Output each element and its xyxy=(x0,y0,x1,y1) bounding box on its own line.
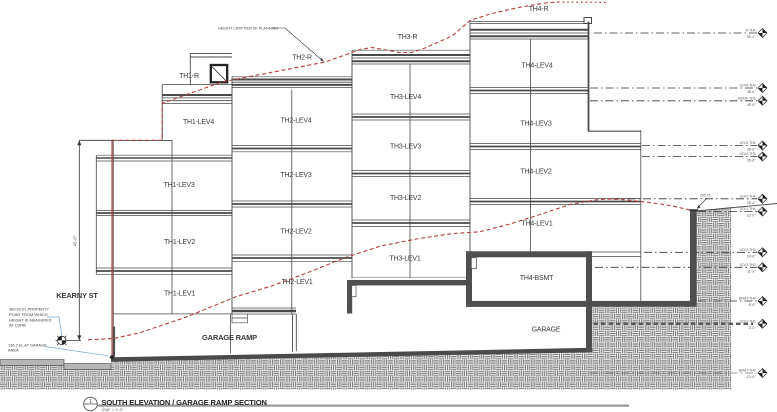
svg-text:TH4-R: TH4-R xyxy=(529,6,549,13)
svg-text:TH3-LEV3: TH3-LEV3 xyxy=(390,144,421,151)
svg-text:TH3-LEV4: TH3-LEV4 xyxy=(390,94,421,101)
svg-text:TH1-LEV3: TH1-LEV3 xyxy=(163,182,194,189)
svg-text:3/16" = 1'-0": 3/16" = 1'-0" xyxy=(102,407,124,412)
svg-text:TH3-LEV2: TH3-LEV2 xyxy=(390,195,421,202)
svg-text:TH1-LEV4: TH1-LEV4 xyxy=(183,119,214,126)
svg-text:TH2-LEV1: TH2-LEV1 xyxy=(281,279,312,286)
svg-text:AT CURB: AT CURB xyxy=(9,323,26,328)
svg-text:TH3-LEV1: TH3-LEV1 xyxy=(389,256,420,263)
svg-text:POINT FROM WHICH: POINT FROM WHICH xyxy=(9,312,48,317)
svg-text:35'-6": 35'-6" xyxy=(747,159,756,163)
svg-text:59'-0": 59'-0" xyxy=(747,35,756,39)
svg-text:TH4-LEV1: TH4-LEV1 xyxy=(521,221,552,228)
svg-text:22'-0": 22'-0" xyxy=(747,214,756,218)
svg-text:14'-6": 14'-6" xyxy=(747,254,756,258)
svg-text:GARAGE: GARAGE xyxy=(532,327,561,334)
svg-text:TH4-LEV3: TH4-LEV3 xyxy=(520,121,551,128)
svg-text:BSMT-TH3: BSMT-TH3 xyxy=(739,369,756,373)
svg-text:HEIGHT LIMIT PER SF PLANNING: HEIGHT LIMIT PER SF PLANNING xyxy=(218,27,278,31)
svg-text:-10'-0": -10'-0" xyxy=(746,375,757,379)
svg-text:AREA: AREA xyxy=(8,347,19,352)
svg-text:360.02 EL PROPERTY: 360.02 EL PROPERTY xyxy=(9,307,49,312)
svg-text:TH3-R: TH3-R xyxy=(398,34,418,41)
svg-text:TH4-LEV4: TH4-LEV4 xyxy=(521,63,552,70)
svg-text:TH1-LEV1: TH1-LEV1 xyxy=(164,291,195,298)
svg-text:45'-6": 45'-6" xyxy=(747,103,756,107)
svg-text:LEV1-TH4: LEV1-TH4 xyxy=(740,207,756,211)
svg-text:SOUTH ELEVATION / GARAGE RAMP: SOUTH ELEVATION / GARAGE RAMP SECTION xyxy=(102,398,267,407)
svg-text:LEV2-TH3: LEV2-TH3 xyxy=(740,263,756,267)
svg-text:GARAGE RAMP: GARAGE RAMP xyxy=(202,333,257,342)
svg-text:26'-4": 26'-4" xyxy=(747,201,756,205)
svg-text:1: 1 xyxy=(89,399,92,405)
svg-text:LEV2-TH4: LEV2-TH4 xyxy=(740,194,756,198)
svg-text:TH1-R: TH1-R xyxy=(179,73,199,80)
svg-text:TH2-LEV3: TH2-LEV3 xyxy=(280,172,311,179)
svg-text:LEV1-TH3: LEV1-TH3 xyxy=(740,319,756,323)
svg-text:LEV3-TH3: LEV3-TH3 xyxy=(740,248,756,252)
svg-text:6'-6": 6'-6" xyxy=(749,303,757,307)
svg-text:295.75: 295.75 xyxy=(700,194,710,198)
svg-text:11'-3": 11'-3" xyxy=(747,269,756,273)
svg-text:TH4-BSMT: TH4-BSMT xyxy=(520,275,554,282)
svg-text:KEARNY ST: KEARNY ST xyxy=(56,291,98,300)
svg-text:BSMT-TH4: BSMT-TH4 xyxy=(739,297,756,301)
svg-text:LEV4-TH4: LEV4-TH4 xyxy=(740,84,756,88)
svg-text:TH2-LEV4: TH2-LEV4 xyxy=(280,117,311,124)
svg-text:0'-0": 0'-0" xyxy=(749,326,757,330)
svg-text:TH1-LEV2: TH1-LEV2 xyxy=(164,239,195,246)
svg-text:45'-0": 45'-0" xyxy=(73,235,78,246)
svg-text:38'-0": 38'-0" xyxy=(747,148,756,152)
svg-text:ROOF-TH3: ROOF-TH3 xyxy=(738,96,755,100)
svg-text:TH4-LEV2: TH4-LEV2 xyxy=(520,169,551,176)
svg-text:LEV3-TH4: LEV3-TH4 xyxy=(740,141,756,145)
svg-text:TH2-R: TH2-R xyxy=(292,55,312,62)
svg-text:R-TH4: R-TH4 xyxy=(746,29,756,33)
svg-text:TH2-LEV2: TH2-LEV2 xyxy=(280,229,311,236)
svg-text:HEIGHT IS MEASURED: HEIGHT IS MEASURED xyxy=(9,317,52,322)
svg-text:48'-6": 48'-6" xyxy=(747,90,756,94)
svg-text:LEV4-TH3: LEV4-TH3 xyxy=(740,152,756,156)
